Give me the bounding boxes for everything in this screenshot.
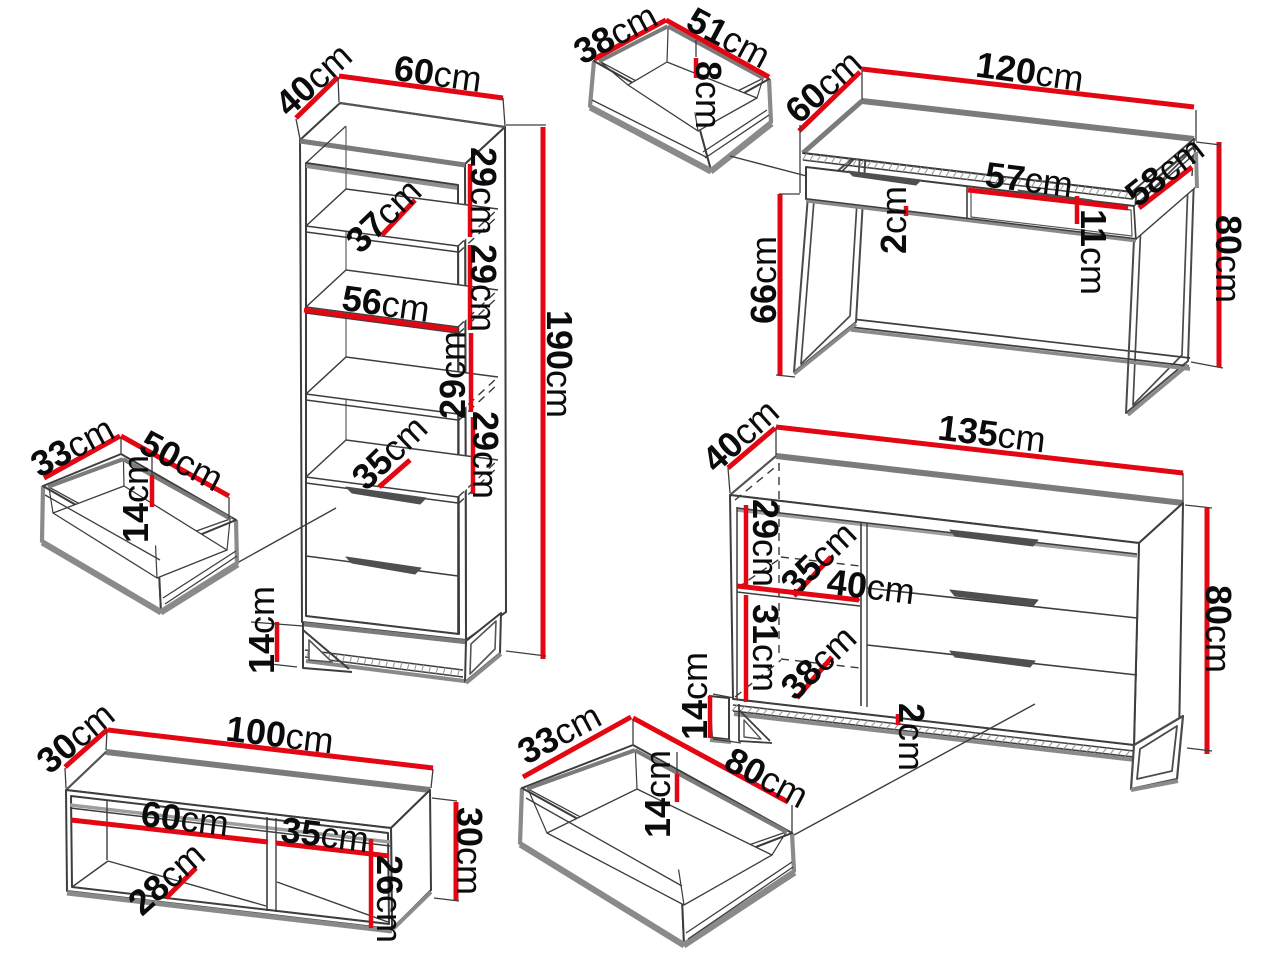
svg-text:30cm: 30cm: [449, 807, 490, 895]
svg-text:14cm: 14cm: [241, 586, 282, 674]
svg-text:29cm: 29cm: [465, 411, 506, 499]
svg-text:80cm: 80cm: [1198, 585, 1239, 673]
svg-text:190cm: 190cm: [539, 310, 580, 418]
svg-text:14cm: 14cm: [637, 750, 678, 838]
svg-text:14cm: 14cm: [115, 455, 156, 543]
svg-text:14cm: 14cm: [674, 652, 715, 740]
svg-text:29cm: 29cm: [463, 244, 504, 332]
svg-text:2cm: 2cm: [873, 186, 914, 254]
svg-text:66cm: 66cm: [743, 236, 784, 324]
svg-text:8cm: 8cm: [688, 61, 729, 129]
svg-text:29cm: 29cm: [432, 331, 473, 419]
svg-text:29cm: 29cm: [463, 147, 504, 235]
svg-text:11cm: 11cm: [1073, 209, 1114, 295]
svg-text:80cm: 80cm: [1208, 215, 1249, 303]
svg-text:26cm: 26cm: [369, 855, 410, 943]
svg-text:2cm: 2cm: [891, 703, 932, 771]
